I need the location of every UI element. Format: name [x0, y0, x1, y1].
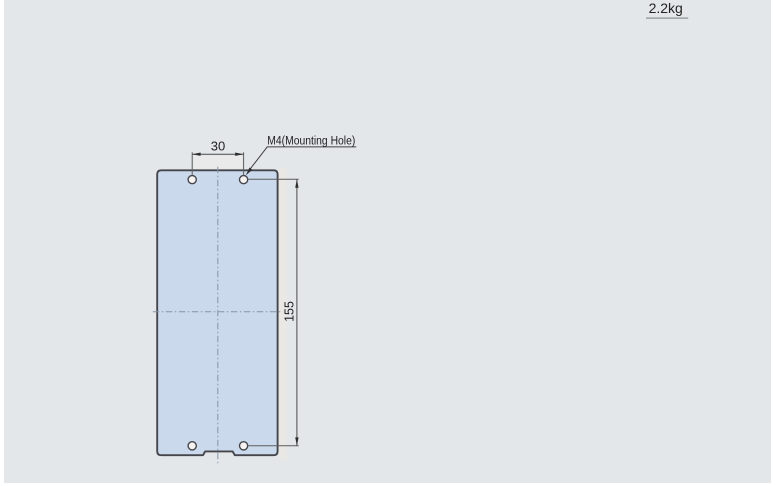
svg-text:155: 155	[282, 301, 296, 322]
svg-text:2.2kg: 2.2kg	[649, 0, 683, 16]
svg-text:30: 30	[211, 139, 225, 154]
svg-text:M4(Mounting Hole): M4(Mounting Hole)	[267, 134, 355, 148]
